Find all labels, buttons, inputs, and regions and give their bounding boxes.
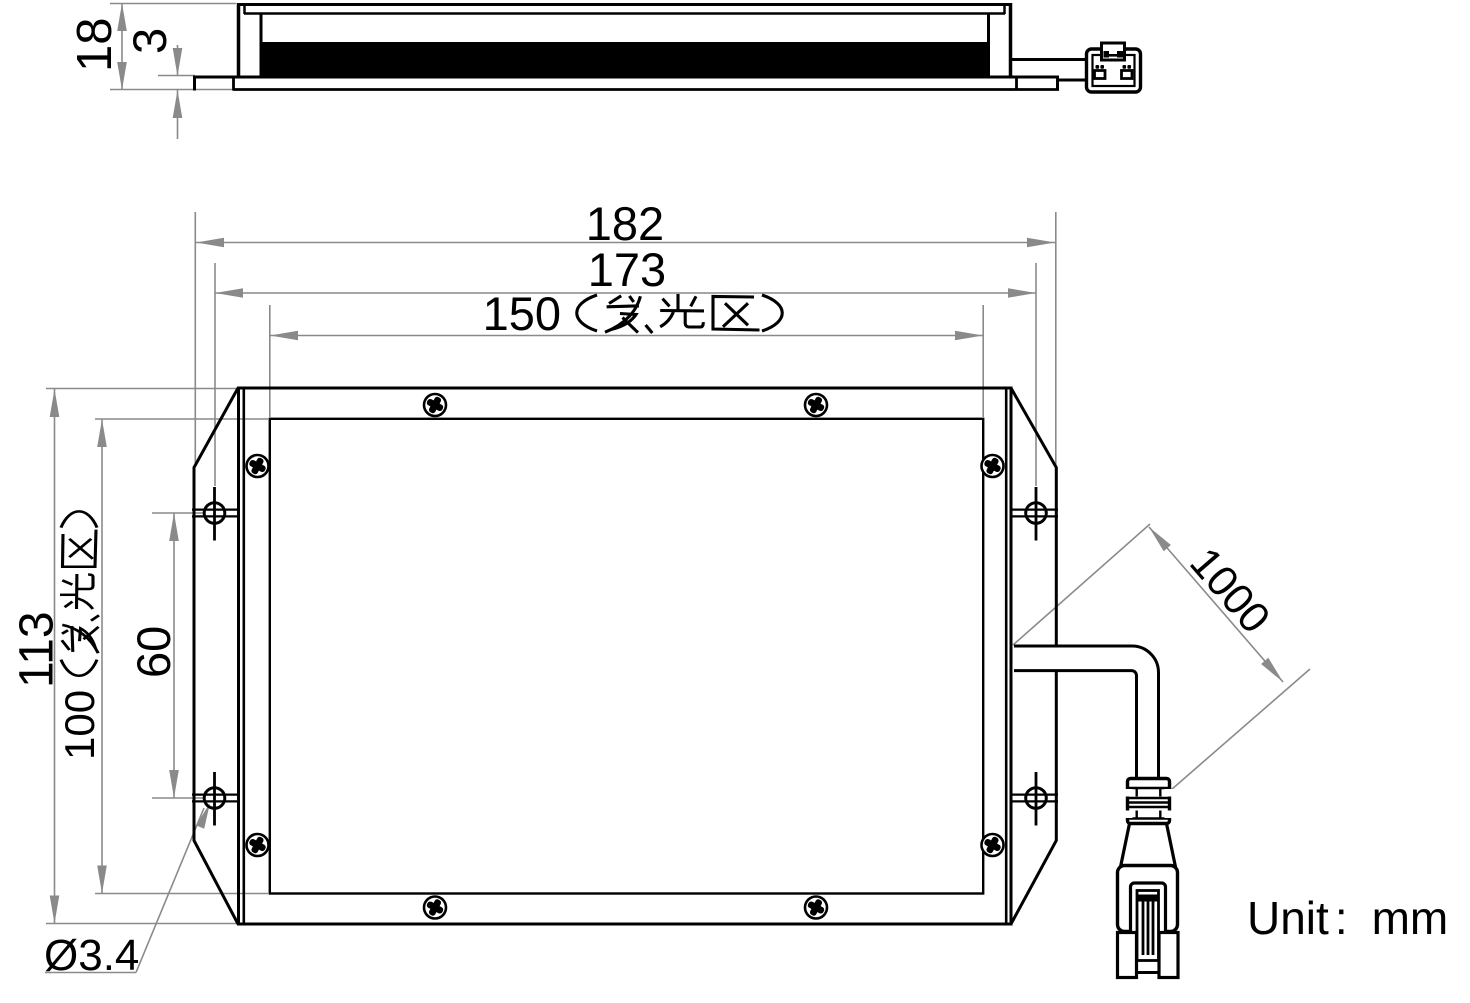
svg-text:100: 100 [56, 690, 103, 760]
svg-text:3: 3 [123, 28, 176, 54]
svg-text:173: 173 [588, 243, 666, 296]
svg-text:18: 18 [68, 17, 122, 72]
svg-text:Ø3.4: Ø3.4 [44, 931, 139, 980]
svg-text:150: 150 [483, 287, 561, 340]
svg-text:60: 60 [127, 626, 180, 678]
svg-text:113: 113 [11, 611, 64, 688]
